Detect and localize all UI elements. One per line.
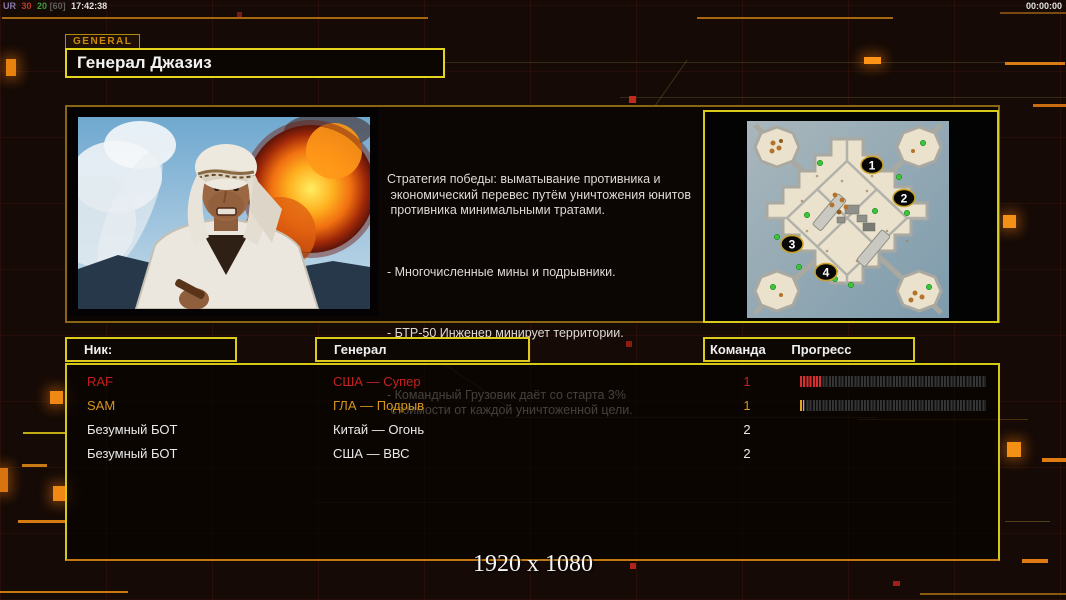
player-progress-bar <box>800 376 986 387</box>
accent-line <box>2 17 428 19</box>
map-marker-3: 3 <box>789 238 796 252</box>
table-row: Безумный БОТСША — ВВС2 <box>67 441 998 465</box>
strategy-intro: Стратегия победы: выматывание противника… <box>387 172 699 219</box>
status-time: 17:42:38 <box>71 1 107 11</box>
header-nick: Ник: <box>65 337 237 362</box>
player-progress-bar <box>800 424 986 435</box>
player-general: Китай — Огонь <box>333 422 727 437</box>
trace-line <box>620 97 1066 98</box>
red-square <box>893 581 900 586</box>
match-timer: 00:00:00 <box>1026 1 1062 11</box>
map-marker-2: 2 <box>901 192 908 206</box>
strategy-bullet: - Многочисленные мины и подрывники. <box>387 265 699 281</box>
player-general: США — Супер <box>333 374 727 389</box>
accent-line <box>1042 458 1066 462</box>
glow-square <box>0 468 8 492</box>
player-nick: RAF <box>87 374 333 389</box>
accent-line <box>22 464 47 467</box>
game-loading-screen: UR 30 20 [60] 17:42:38 00:00:00 GENERAL … <box>0 0 1066 600</box>
players-table: RAFСША — Супер1SAMГЛА — Подрыв1Безумный … <box>65 363 1000 561</box>
general-tab-label: GENERAL <box>65 34 140 49</box>
table-row: RAFСША — Супер1 <box>67 369 998 393</box>
status-bar-left: UR 30 20 [60] 17:42:38 <box>3 1 110 11</box>
red-square <box>237 12 242 17</box>
status-seg2: 30 <box>22 1 32 11</box>
map-marker-4: 4 <box>823 266 830 280</box>
status-seg4: [60] <box>50 1 66 11</box>
header-general: Генерал <box>315 337 530 362</box>
table-row: Безумный БОТКитай — Огонь2 <box>67 417 998 441</box>
player-rows: RAFСША — Супер1SAMГЛА — Подрыв1Безумный … <box>67 369 998 465</box>
header-progress-label: Прогресс <box>791 342 851 357</box>
minimap: 1 2 3 4 <box>747 121 949 318</box>
player-general: США — ВВС <box>333 446 727 461</box>
accent-line <box>0 591 128 593</box>
trace-line <box>1005 521 1050 522</box>
trace-line <box>652 60 687 110</box>
resolution-label: 1920 x 1080 <box>0 551 1066 578</box>
accent-line <box>1033 104 1066 107</box>
player-progress-bar <box>800 448 986 459</box>
general-portrait <box>78 117 370 309</box>
glow-square <box>50 391 63 404</box>
accent-line <box>1000 12 1066 14</box>
player-team: 1 <box>727 374 767 389</box>
table-row: SAMГЛА — Подрыв1 <box>67 393 998 417</box>
player-team: 1 <box>727 398 767 413</box>
player-general: ГЛА — Подрыв <box>333 398 727 413</box>
status-seg1: UR <box>3 1 16 11</box>
accent-line <box>697 17 893 19</box>
header-team-label: Команда <box>710 342 766 357</box>
glow-square <box>6 59 16 76</box>
accent-line <box>920 593 1066 595</box>
glow-square <box>1007 442 1021 457</box>
trace-line <box>430 62 1066 63</box>
player-nick: Безумный БОТ <box>87 422 333 437</box>
glow-square <box>1003 215 1016 228</box>
status-seg3: 20 <box>37 1 47 11</box>
player-team: 2 <box>727 446 767 461</box>
red-square <box>629 96 636 103</box>
accent-line <box>23 432 65 434</box>
map-marker-1: 1 <box>869 159 876 173</box>
player-nick: Безумный БОТ <box>87 446 333 461</box>
header-team-progress: Команда Прогресс <box>703 337 915 362</box>
general-title: Генерал Джазиз <box>65 48 445 78</box>
minimap-panel: 1 2 3 4 <box>703 110 999 323</box>
player-team: 2 <box>727 422 767 437</box>
player-progress-bar <box>800 400 986 411</box>
player-nick: SAM <box>87 398 333 413</box>
glow-square <box>864 57 881 64</box>
accent-line <box>18 520 66 523</box>
